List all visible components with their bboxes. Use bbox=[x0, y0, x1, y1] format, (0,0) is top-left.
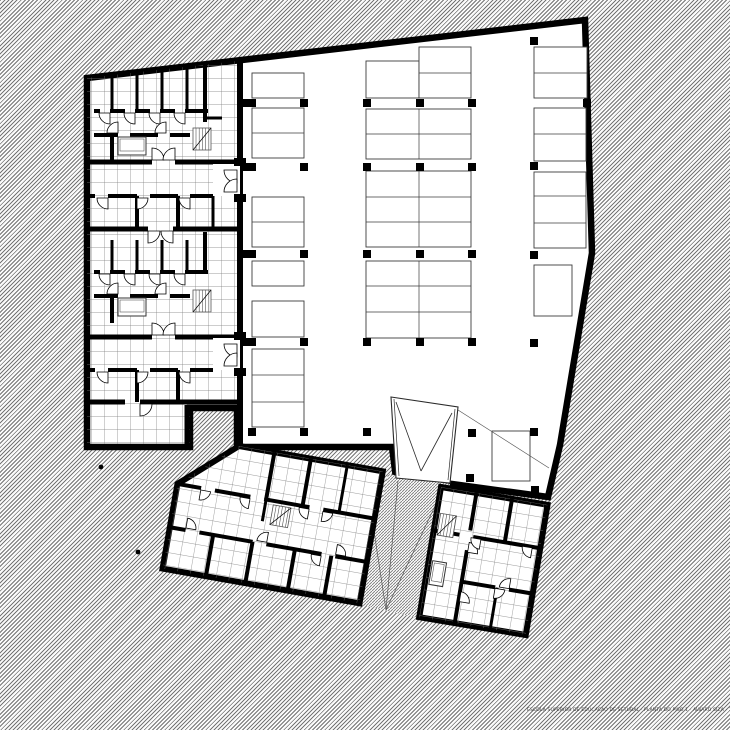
engaged-column bbox=[241, 99, 249, 107]
column bbox=[363, 163, 371, 171]
column bbox=[468, 429, 476, 437]
table bbox=[366, 61, 419, 98]
column bbox=[248, 163, 256, 171]
table bbox=[419, 47, 471, 98]
engaged-column bbox=[583, 99, 591, 107]
column bbox=[468, 250, 476, 258]
column bbox=[416, 163, 424, 171]
table bbox=[366, 171, 471, 247]
site-dot bbox=[136, 550, 141, 555]
column bbox=[416, 250, 424, 258]
column bbox=[468, 163, 476, 171]
column bbox=[248, 428, 256, 436]
cabinet bbox=[534, 265, 572, 316]
column bbox=[466, 474, 474, 482]
column bbox=[530, 339, 538, 347]
engaged-column bbox=[241, 250, 249, 258]
drawing-caption: ESCOLA SUPERIOR DE EDUCACAO DE SETUBAL ·… bbox=[527, 708, 730, 714]
column bbox=[248, 99, 256, 107]
column bbox=[248, 338, 256, 346]
column bbox=[530, 37, 538, 45]
site-dots bbox=[99, 465, 141, 555]
column bbox=[300, 99, 308, 107]
table bbox=[534, 108, 586, 161]
floor-plan-canvas: ESCOLA SUPERIOR DE EDUCACAO DE SETUBAL ·… bbox=[0, 0, 730, 730]
column bbox=[416, 99, 424, 107]
wing-south-right bbox=[419, 487, 547, 635]
engaged-column bbox=[241, 338, 249, 346]
column bbox=[300, 163, 308, 171]
column bbox=[468, 99, 476, 107]
column bbox=[530, 428, 538, 436]
column bbox=[363, 99, 371, 107]
column bbox=[416, 338, 424, 346]
column bbox=[531, 486, 539, 494]
table bbox=[366, 261, 471, 338]
left-wing bbox=[87, 61, 246, 447]
column bbox=[363, 250, 371, 258]
column bbox=[300, 428, 308, 436]
engaged-column bbox=[241, 163, 249, 171]
table bbox=[252, 73, 304, 98]
site-dot bbox=[99, 465, 104, 470]
floor-plan-drawing bbox=[0, 0, 730, 730]
table bbox=[534, 47, 587, 98]
table bbox=[252, 349, 304, 427]
cabinet bbox=[492, 431, 530, 481]
column bbox=[530, 162, 538, 170]
wing-south-left bbox=[163, 437, 383, 604]
column bbox=[300, 338, 308, 346]
column bbox=[248, 250, 256, 258]
table bbox=[534, 172, 586, 248]
column bbox=[300, 250, 308, 258]
entrance-ramp bbox=[391, 397, 458, 483]
column bbox=[468, 338, 476, 346]
table bbox=[252, 261, 304, 286]
column bbox=[363, 428, 371, 436]
column bbox=[363, 338, 371, 346]
column bbox=[530, 251, 538, 259]
table bbox=[252, 301, 304, 337]
